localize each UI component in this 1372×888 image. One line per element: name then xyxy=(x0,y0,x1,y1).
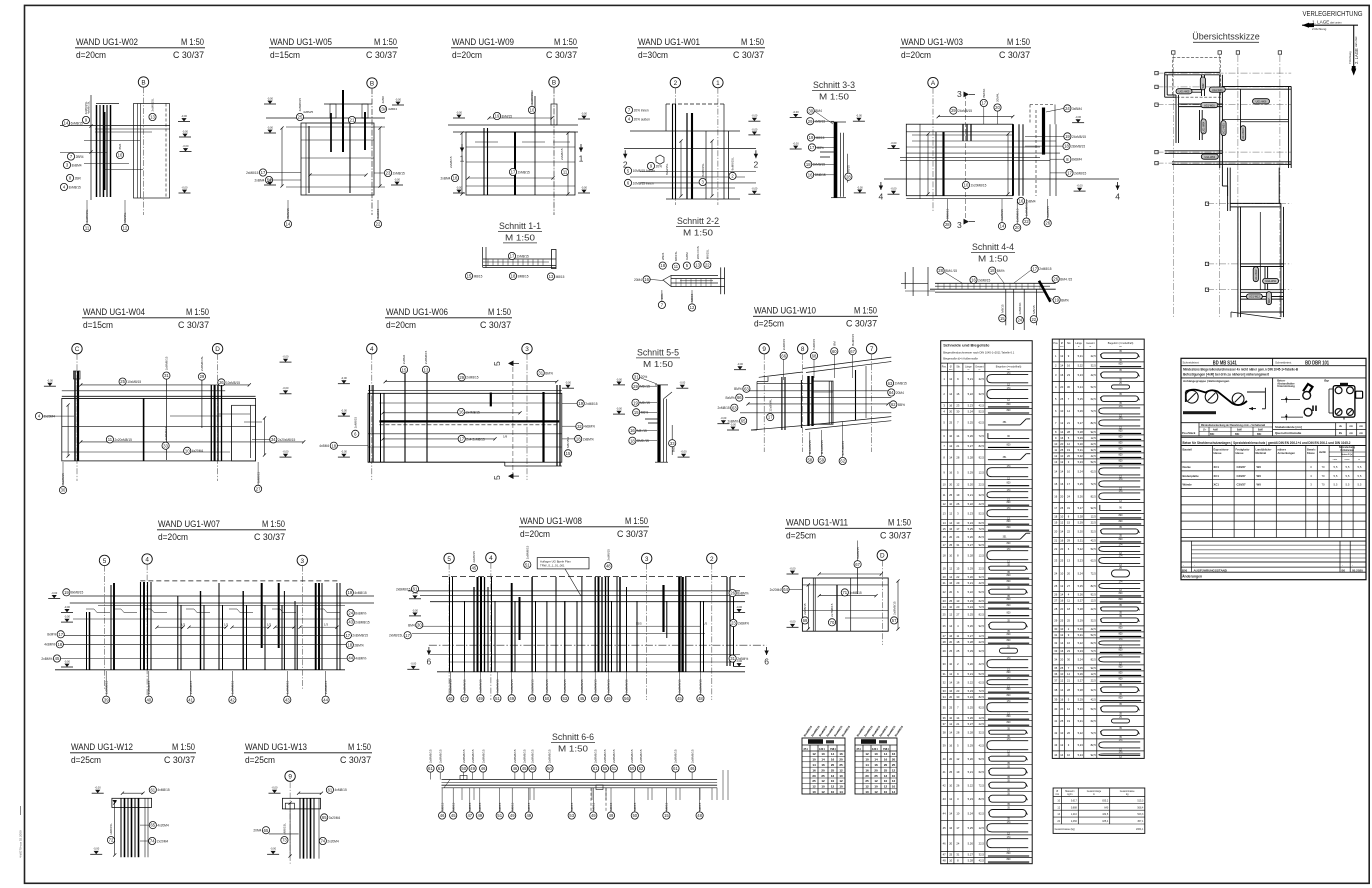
svg-text:11: 11 xyxy=(674,264,679,269)
svg-text:Decke: Decke xyxy=(1183,465,1192,469)
svg-text:WAND UG1-W07: WAND UG1-W07 xyxy=(158,519,220,529)
svg-text:5,22: 5,22 xyxy=(1078,731,1084,735)
svg-text:30: 30 xyxy=(943,662,946,666)
svg-text:2x20xM8/15: 2x20xM8/15 xyxy=(115,438,133,442)
svg-text:2xBM8/15: 2xBM8/15 xyxy=(510,679,514,693)
svg-text:5,28: 5,28 xyxy=(1078,515,1084,519)
svg-text:14: 14 xyxy=(839,790,843,794)
svg-text:C30/37: C30/37 xyxy=(1237,483,1246,487)
svg-text:20: 20 xyxy=(874,768,878,772)
svg-text:19: 19 xyxy=(1067,719,1070,723)
svg-text:14: 14 xyxy=(1060,363,1063,367)
svg-text:5,25: 5,25 xyxy=(1078,482,1084,486)
svg-text:62: 62 xyxy=(840,459,845,464)
svg-text:5,23: 5,23 xyxy=(968,404,974,408)
svg-text:25: 25 xyxy=(949,421,952,425)
svg-text:12,5: 12,5 xyxy=(1091,672,1097,676)
svg-text:45: 45 xyxy=(580,696,585,701)
svg-text:UG1-W06: UG1-W06 xyxy=(1256,101,1267,104)
svg-text:14: 14 xyxy=(1060,753,1063,757)
svg-text:Stk.: Stk. xyxy=(1067,342,1071,345)
svg-text:46: 46 xyxy=(448,696,453,701)
svg-text:25: 25 xyxy=(839,763,843,767)
svg-text:12: 12 xyxy=(839,779,843,783)
svg-text:5,5: 5,5 xyxy=(1334,483,1338,487)
svg-text:16: 16 xyxy=(874,763,878,767)
svg-text:30: 30 xyxy=(61,488,66,493)
svg-text:20: 20 xyxy=(865,774,869,778)
svg-text:32,5: 32,5 xyxy=(1091,688,1097,692)
svg-text:XC1: XC1 xyxy=(1214,465,1220,469)
svg-text:BM8 /15: BM8 /15 xyxy=(637,439,649,443)
svg-text:10M8/15 innen: 10M8/15 innen xyxy=(633,181,654,185)
svg-text:5: 5 xyxy=(447,556,451,563)
svg-text:22,5: 22,5 xyxy=(979,482,985,486)
svg-text:-: - xyxy=(1352,563,1353,567)
svg-text:72,5: 72,5 xyxy=(979,783,985,787)
svg-text:12,5: 12,5 xyxy=(979,634,985,638)
svg-text:29: 29 xyxy=(1067,539,1070,543)
svg-text:WU: WU xyxy=(1257,474,1262,478)
svg-text:4xBM%: 4xBM% xyxy=(584,425,595,429)
svg-text:2x8xM8/15: 2x8xM8/15 xyxy=(352,634,368,638)
svg-text:38: 38 xyxy=(1054,688,1057,692)
svg-text:1/5: 1/5 xyxy=(703,622,708,626)
svg-text:M8%: M8% xyxy=(817,146,824,150)
svg-text:13: 13 xyxy=(424,367,429,372)
svg-text:61: 61 xyxy=(438,766,443,771)
svg-text:2x4M8/15: 2x4M8/15 xyxy=(466,410,480,414)
svg-text:15: 15 xyxy=(943,527,946,531)
svg-text:5,21: 5,21 xyxy=(968,377,974,381)
svg-text:2xBM8/15: 2xBM8/15 xyxy=(531,749,535,763)
svg-text:5,23: 5,23 xyxy=(1078,373,1084,377)
svg-text:18: 18 xyxy=(347,643,352,648)
svg-text:-0,00: -0,00 xyxy=(856,114,862,118)
svg-text:5,25: 5,25 xyxy=(968,527,974,531)
svg-text:92,5: 92,5 xyxy=(979,705,985,709)
svg-text:52,5: 52,5 xyxy=(1091,547,1097,551)
svg-text:5: 5 xyxy=(492,475,502,480)
svg-text:24: 24 xyxy=(348,611,353,616)
svg-text:2xM8/15L: 2xM8/15L xyxy=(85,209,89,223)
svg-text:48: 48 xyxy=(943,859,946,863)
svg-text:15: 15 xyxy=(1000,316,1005,321)
svg-text:4xBM8/15: 4xBM8/15 xyxy=(298,98,302,112)
svg-text:d=25cm: d=25cm xyxy=(754,319,784,329)
svg-text:WU: WU xyxy=(1257,483,1262,487)
svg-text:4xM8/15: 4xM8/15 xyxy=(354,591,366,595)
svg-text:39: 39 xyxy=(1054,697,1057,701)
svg-text:Biegeform (=modellhaft): Biegeform (=modellhaft) xyxy=(996,365,1022,368)
svg-text:5,20: 5,20 xyxy=(1078,530,1084,534)
svg-text:10: 10 xyxy=(839,774,843,778)
svg-text:23: 23 xyxy=(1054,559,1057,563)
svg-text:70: 70 xyxy=(830,620,835,625)
svg-text:64: 64 xyxy=(783,587,788,592)
svg-text:2xBM%: 2xBM% xyxy=(738,621,749,625)
svg-text:10: 10 xyxy=(956,521,959,525)
svg-text:12,5: 12,5 xyxy=(1091,515,1097,519)
svg-text:12: 12 xyxy=(949,672,952,676)
svg-text:8xBM4: 8xBM4 xyxy=(1072,158,1082,162)
svg-text:20: 20 xyxy=(949,482,952,486)
svg-text:25: 25 xyxy=(949,599,952,603)
svg-text:12: 12 xyxy=(812,785,816,789)
svg-text:Mindestens Biegerollendurchmes: Mindestens Biegerollendurchmesser 4x nic… xyxy=(1183,367,1298,371)
svg-text:52,5: 52,5 xyxy=(979,410,985,414)
svg-text:C 30/37: C 30/37 xyxy=(733,50,764,60)
svg-text:5,24: 5,24 xyxy=(1078,753,1084,757)
svg-text:BM%: BM% xyxy=(734,387,742,391)
svg-text:5,29: 5,29 xyxy=(968,566,974,570)
svg-text:-0,00: -0,00 xyxy=(283,386,289,390)
svg-text:16: 16 xyxy=(949,527,952,531)
svg-text:14: 14 xyxy=(865,763,869,767)
svg-text:C 30/37: C 30/37 xyxy=(254,532,285,542)
svg-text:70: 70 xyxy=(1321,474,1325,478)
svg-text:-0,00: -0,00 xyxy=(181,114,187,118)
svg-text:1: 1 xyxy=(579,154,584,164)
svg-text:12,5: 12,5 xyxy=(1091,436,1097,440)
svg-text:-0,00: -0,00 xyxy=(64,615,70,619)
svg-text:8xM8/15: 8xM8/15 xyxy=(813,163,825,167)
svg-text:5,27: 5,27 xyxy=(1078,506,1084,510)
svg-text:-0,00: -0,00 xyxy=(857,185,863,189)
svg-text:44: 44 xyxy=(323,697,328,702)
svg-text:12: 12 xyxy=(1060,521,1063,525)
svg-text:26: 26 xyxy=(956,502,959,506)
svg-text:72,5: 72,5 xyxy=(979,605,985,609)
svg-text:16: 16 xyxy=(1067,363,1070,367)
svg-text:9: 9 xyxy=(288,774,292,781)
svg-text:2xBM8/15: 2xBM8/15 xyxy=(438,749,442,763)
svg-text:M8/15: M8/15 xyxy=(816,136,825,140)
svg-text:5,24: 5,24 xyxy=(968,521,974,525)
svg-text:WAND UG1-W04: WAND UG1-W04 xyxy=(83,307,145,317)
svg-text:5,22: 5,22 xyxy=(1078,363,1084,367)
svg-text:25: 25 xyxy=(298,115,303,120)
svg-text:klasse: klasse xyxy=(1236,451,1244,455)
svg-text:43: 43 xyxy=(348,620,353,625)
svg-text:ds/dbr: ds/dbr xyxy=(1319,452,1326,454)
svg-text:2xBM8/15: 2xBM8/15 xyxy=(324,680,328,694)
svg-text:2xBM8/15: 2xBM8/15 xyxy=(1025,202,1029,216)
svg-text:32,5: 32,5 xyxy=(979,392,985,396)
svg-text:46: 46 xyxy=(440,813,445,818)
svg-text:14: 14 xyxy=(949,575,952,579)
svg-text:2BR4: 2BR4 xyxy=(661,252,665,260)
svg-text:UG1-W05: UG1-W05 xyxy=(1179,91,1190,94)
svg-text:2xM8/15: 2xM8/15 xyxy=(449,156,453,168)
svg-text:2xBM8/15L: 2xBM8/15L xyxy=(200,356,204,372)
svg-text:Betondeckung: Betondeckung xyxy=(1339,446,1356,449)
svg-text:-0,00: -0,00 xyxy=(793,110,799,114)
svg-text:2xBM8/15: 2xBM8/15 xyxy=(563,679,567,693)
svg-text:13: 13 xyxy=(549,274,554,279)
svg-text:12: 12 xyxy=(892,779,896,783)
svg-text:62,5: 62,5 xyxy=(979,421,985,425)
svg-text:12,5: 12,5 xyxy=(979,826,985,830)
svg-text:d=15cm: d=15cm xyxy=(270,50,300,60)
svg-text:22,5: 22,5 xyxy=(979,841,985,845)
svg-text:92,5: 92,5 xyxy=(979,811,985,815)
svg-text:4: 4 xyxy=(370,346,374,353)
svg-text:M 1:50: M 1:50 xyxy=(819,92,849,102)
svg-text:19: 19 xyxy=(956,493,959,497)
svg-text:12: 12 xyxy=(949,511,952,515)
svg-text:M8 /15: M8 /15 xyxy=(637,429,647,433)
svg-text:12: 12 xyxy=(943,502,946,506)
svg-text:Gesamt: Gesamt xyxy=(975,365,984,368)
svg-text:49: 49 xyxy=(526,813,531,818)
svg-text:C30/37: C30/37 xyxy=(1237,474,1246,478)
svg-text:-0,00: -0,00 xyxy=(720,416,726,420)
svg-text:2xBM8/15: 2xBM8/15 xyxy=(580,679,584,693)
svg-text:xM8/15L: xM8/15L xyxy=(109,823,113,835)
svg-text:0,617: 0,617 xyxy=(1071,799,1078,802)
svg-text:Länge: Länge xyxy=(1075,342,1082,345)
svg-text:Ø: Ø xyxy=(1056,791,1058,793)
svg-text:12: 12 xyxy=(1067,707,1070,711)
svg-text:14: 14 xyxy=(821,758,825,762)
svg-text:14: 14 xyxy=(831,752,835,756)
svg-text:40: 40 xyxy=(146,697,151,702)
svg-text:2BR: 2BR xyxy=(75,176,82,180)
svg-text:-0,00: -0,00 xyxy=(736,605,742,609)
svg-text:5,28: 5,28 xyxy=(968,859,974,863)
svg-text:57: 57 xyxy=(892,618,897,623)
svg-text:8xM%: 8xM% xyxy=(47,633,56,637)
svg-text:14: 14 xyxy=(956,716,959,720)
svg-text:2x7M8/15: 2x7M8/15 xyxy=(830,603,834,617)
svg-text:Übersichtsskizze: Übersichtsskizze xyxy=(1192,32,1260,42)
svg-text:10: 10 xyxy=(949,434,952,438)
svg-text:M8/15: M8/15 xyxy=(474,274,483,278)
svg-text:5,20: 5,20 xyxy=(1078,627,1084,631)
svg-text:61: 61 xyxy=(328,787,333,792)
svg-text:38: 38 xyxy=(943,730,946,734)
svg-text:1. LAGE: 1. LAGE xyxy=(1312,20,1329,25)
svg-text:51: 51 xyxy=(525,562,530,567)
svg-text:Schnitt 2-2: Schnitt 2-2 xyxy=(677,216,719,226)
svg-text:14: 14 xyxy=(1067,409,1070,413)
svg-text:72,5: 72,5 xyxy=(1091,409,1097,413)
svg-text:4xM8/15L: 4xM8/15L xyxy=(84,101,88,115)
svg-text:d=20cm: d=20cm xyxy=(452,50,482,60)
svg-text:47: 47 xyxy=(462,696,467,701)
svg-text:2xBM8/15: 2xBM8/15 xyxy=(424,350,428,364)
svg-text:12: 12 xyxy=(839,768,843,772)
svg-text:14: 14 xyxy=(1060,688,1063,692)
svg-text:BM4 /15: BM4 /15 xyxy=(1060,277,1072,281)
svg-text:12: 12 xyxy=(123,226,128,231)
svg-text:18: 18 xyxy=(806,162,811,167)
svg-text:82,5: 82,5 xyxy=(979,444,985,448)
svg-text:WAND UG1-W06: WAND UG1-W06 xyxy=(386,307,448,317)
svg-text:4xM: 4xM xyxy=(1213,429,1218,432)
svg-text:2xBM8/15: 2xBM8/15 xyxy=(674,749,678,763)
svg-text:22: 22 xyxy=(1024,219,1029,224)
svg-text:20: 20 xyxy=(949,640,952,644)
svg-text:10: 10 xyxy=(812,758,816,762)
svg-text:50: 50 xyxy=(545,696,550,701)
svg-text:49: 49 xyxy=(477,813,482,818)
svg-text:42: 42 xyxy=(943,783,946,787)
svg-text:2xM8/15: 2xM8/15 xyxy=(895,382,907,386)
svg-text:Klasse: Klasse xyxy=(1307,452,1315,455)
svg-text:D: D xyxy=(880,553,885,560)
svg-text:22,5: 22,5 xyxy=(979,377,985,381)
svg-text:BM%: BM% xyxy=(545,371,553,375)
svg-text:Gesamt: Gesamt xyxy=(1086,342,1095,345)
svg-text:49: 49 xyxy=(509,696,514,701)
svg-text:d=20cm: d=20cm xyxy=(520,529,550,539)
svg-text:16: 16 xyxy=(1067,641,1070,645)
svg-text:28: 28 xyxy=(956,730,959,734)
svg-text:74: 74 xyxy=(150,839,155,844)
svg-text:-0,00: -0,00 xyxy=(565,381,571,385)
svg-text:640: 640 xyxy=(1104,806,1109,809)
svg-text:65: 65 xyxy=(322,815,327,820)
svg-text:10xM8/15: 10xM8/15 xyxy=(127,380,141,384)
svg-text:17: 17 xyxy=(58,632,63,637)
svg-text:28: 28 xyxy=(945,222,950,227)
svg-text:5,29: 5,29 xyxy=(1078,521,1084,525)
svg-text:24xM8/15: 24xM8/15 xyxy=(958,109,972,113)
svg-text:8M4: 8M4 xyxy=(118,143,122,149)
svg-text:UG1-W09: UG1-W09 xyxy=(1212,89,1223,92)
svg-text:12: 12 xyxy=(949,444,952,448)
svg-text:Beton für Strahlenschutzanlage: Beton für Strahlenschutzanlagen | Spezia… xyxy=(1183,441,1351,445)
svg-text:18: 18 xyxy=(576,437,581,442)
svg-text:2xBM8/15: 2xBM8/15 xyxy=(607,679,611,693)
svg-text:14: 14 xyxy=(1060,430,1063,434)
svg-text:2x20M4: 2x20M4 xyxy=(44,415,56,419)
svg-text:C 30/37: C 30/37 xyxy=(846,319,877,329)
svg-text:30: 30 xyxy=(1067,385,1070,389)
svg-text:23: 23 xyxy=(943,599,946,603)
svg-text:10: 10 xyxy=(1067,753,1070,757)
svg-text:27: 27 xyxy=(943,634,946,638)
svg-text:67: 67 xyxy=(850,349,855,354)
svg-text:24: 24 xyxy=(1054,572,1057,576)
svg-text:16: 16 xyxy=(956,392,959,396)
svg-text:5,25: 5,25 xyxy=(1078,666,1084,670)
svg-text:14: 14 xyxy=(956,434,959,438)
svg-text:10: 10 xyxy=(812,790,816,794)
svg-text:-0,00: -0,00 xyxy=(456,110,462,114)
svg-text:35: 35 xyxy=(943,705,946,709)
svg-text:52,5: 52,5 xyxy=(1091,385,1097,389)
svg-text:BM8/15: BM8/15 xyxy=(518,274,529,278)
svg-text:25: 25 xyxy=(949,770,952,774)
svg-text:14: 14 xyxy=(892,790,896,794)
svg-text:47: 47 xyxy=(467,813,472,818)
svg-text:52: 52 xyxy=(639,766,644,771)
svg-text:12: 12 xyxy=(949,797,952,801)
svg-text:24: 24 xyxy=(1065,106,1070,111)
svg-text:1/8: 1/8 xyxy=(503,435,508,439)
svg-text:13: 13 xyxy=(1067,559,1070,563)
svg-text:5,23: 5,23 xyxy=(968,797,974,801)
svg-text:34: 34 xyxy=(943,695,946,699)
svg-text:2xBM4: 2xBM4 xyxy=(402,355,406,365)
svg-text:B0: B0 xyxy=(1342,568,1346,572)
svg-text:12: 12 xyxy=(1054,454,1057,458)
svg-text:cm: cm xyxy=(1119,346,1122,348)
svg-text:14: 14 xyxy=(949,624,952,628)
svg-text:45: 45 xyxy=(943,826,946,830)
svg-text:5,5: 5,5 xyxy=(1358,483,1362,487)
svg-text:6: 6 xyxy=(427,657,432,667)
svg-text:5,26: 5,26 xyxy=(968,535,974,539)
svg-text:2xBM8/15: 2xBM8/15 xyxy=(593,679,597,693)
svg-text:2xM8/15: 2xM8/15 xyxy=(518,170,530,174)
svg-text:29: 29 xyxy=(200,374,205,379)
svg-text:WAND UG1-W08: WAND UG1-W08 xyxy=(520,516,582,526)
svg-text:32,5: 32,5 xyxy=(1091,530,1097,534)
svg-text:10: 10 xyxy=(943,482,946,486)
svg-text:72,5: 72,5 xyxy=(979,434,985,438)
svg-text:-0,00: -0,00 xyxy=(616,377,622,381)
svg-text:70: 70 xyxy=(1321,483,1325,487)
svg-text:92,5: 92,5 xyxy=(979,543,985,547)
svg-text:10: 10 xyxy=(865,758,869,762)
svg-text:31: 31 xyxy=(634,374,639,379)
svg-text:17: 17 xyxy=(943,543,946,547)
svg-text:31: 31 xyxy=(164,373,169,378)
svg-text:5,26: 5,26 xyxy=(1078,672,1084,676)
svg-text:1: 1 xyxy=(460,154,465,164)
svg-text:16: 16 xyxy=(1060,373,1063,377)
svg-text:185,4: 185,4 xyxy=(1102,820,1109,823)
svg-text:AUSFÜHRUNGSSTAND: AUSFÜHRUNGSSTAND xyxy=(1194,567,1228,572)
svg-text:61: 61 xyxy=(413,587,418,592)
svg-text:-0,00: -0,00 xyxy=(456,185,462,189)
svg-text:M8/15: M8/15 xyxy=(690,293,694,302)
svg-text:33: 33 xyxy=(163,443,168,448)
svg-text:34: 34 xyxy=(1054,658,1057,662)
svg-text:16: 16 xyxy=(943,535,946,539)
svg-text:4xBR: 4xBR xyxy=(381,95,385,103)
svg-text:-0,00: -0,00 xyxy=(730,422,736,426)
svg-text:22,5: 22,5 xyxy=(1091,442,1097,446)
svg-text:33: 33 xyxy=(943,689,946,693)
svg-text:B: B xyxy=(552,79,556,86)
svg-text:3: 3 xyxy=(645,556,649,563)
svg-text:62,5: 62,5 xyxy=(1091,559,1097,563)
svg-text:68: 68 xyxy=(812,353,817,358)
svg-text:72,5: 72,5 xyxy=(1091,572,1097,576)
svg-text:14: 14 xyxy=(812,763,816,767)
svg-text:17: 17 xyxy=(459,437,464,442)
svg-text:17: 17 xyxy=(810,145,815,150)
svg-text:5,26: 5,26 xyxy=(1078,593,1084,597)
svg-text:-0,00: -0,00 xyxy=(95,786,101,790)
svg-text:Schnitt 5-5: Schnitt 5-5 xyxy=(637,348,679,358)
svg-text:49: 49 xyxy=(478,696,483,701)
svg-text:1: 1 xyxy=(716,80,720,87)
svg-text:14: 14 xyxy=(949,455,952,459)
svg-text:23: 23 xyxy=(956,689,959,693)
svg-text:-0,00: -0,00 xyxy=(891,141,897,145)
svg-text:10: 10 xyxy=(892,785,896,789)
svg-text:2xBM8/15: 2xBM8/15 xyxy=(286,680,290,694)
svg-text:WAND UG1-W13: WAND UG1-W13 xyxy=(245,742,307,752)
svg-text:25: 25 xyxy=(949,853,952,857)
svg-text:5,29: 5,29 xyxy=(1078,697,1084,701)
